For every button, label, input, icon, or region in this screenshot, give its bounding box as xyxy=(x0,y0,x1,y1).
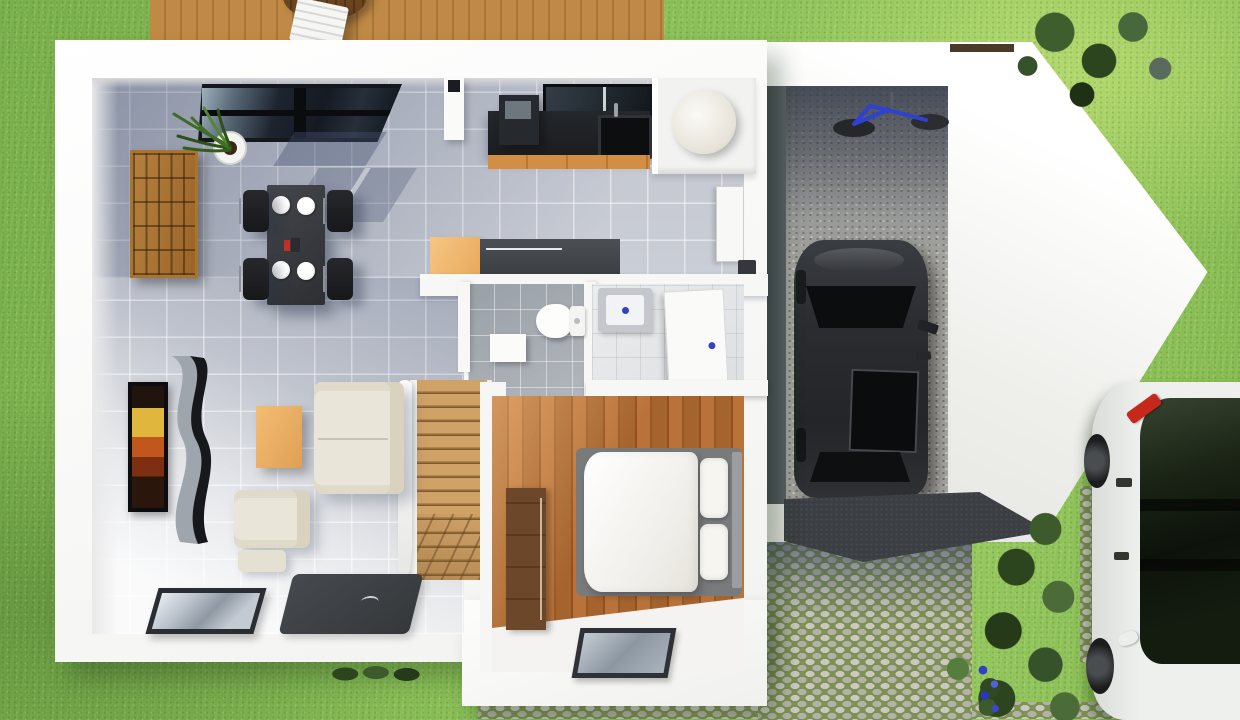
wall-planter-strip xyxy=(950,44,1014,52)
pillow-1 xyxy=(700,458,728,518)
inner-wall-face-left xyxy=(92,78,118,634)
floor-plan-render xyxy=(0,0,1240,720)
hedge-strip-bottom xyxy=(326,662,422,686)
dining-chair-3 xyxy=(327,190,353,232)
dining-chair-1 xyxy=(243,190,269,232)
bedroom-wall-top xyxy=(586,380,768,396)
armchair xyxy=(234,490,310,548)
dining-chair-2 xyxy=(243,258,269,300)
plate-2 xyxy=(297,197,315,215)
white-pillar xyxy=(444,78,464,140)
candle-dark xyxy=(291,238,300,252)
island-counter xyxy=(480,239,620,277)
black-car-sunroof xyxy=(849,369,920,453)
wardrobe xyxy=(506,488,546,630)
black-car xyxy=(794,240,928,498)
dark-rug xyxy=(279,574,424,634)
pillow-2 xyxy=(700,524,728,580)
water-heater xyxy=(672,90,736,154)
black-car-windshield xyxy=(806,286,916,328)
potted-plant xyxy=(168,106,258,178)
black-car-wheel-rear xyxy=(796,428,806,462)
curved-media-unit xyxy=(164,354,214,546)
blue-flowers xyxy=(968,656,1012,720)
hedge-bushes xyxy=(932,512,1094,720)
ottoman xyxy=(238,550,286,572)
plate-3 xyxy=(272,261,290,279)
coffee-machine xyxy=(499,95,539,145)
black-car-wheel-front xyxy=(796,270,806,304)
plate-4 xyxy=(297,262,315,280)
white-car xyxy=(1092,382,1240,720)
kitchen-cabinets xyxy=(488,155,650,169)
plate-1 xyxy=(272,196,290,214)
wall-tv-art xyxy=(128,382,168,512)
headboard xyxy=(732,452,742,588)
candle-red xyxy=(284,240,290,251)
black-car-rear-window xyxy=(810,452,910,482)
wc-sink xyxy=(490,334,526,362)
wall-mounted-bicycle xyxy=(830,92,954,142)
dining-chair-4 xyxy=(327,258,353,300)
white-car-door-handle xyxy=(1116,478,1132,487)
bathroom-door xyxy=(664,288,729,387)
kitchen-sink xyxy=(598,115,652,159)
bush-top-right xyxy=(1014,0,1184,118)
sofa xyxy=(314,382,404,494)
white-car-glass-roof xyxy=(1140,398,1240,664)
car-hood-highlight xyxy=(814,248,904,272)
toilet-bowl xyxy=(536,304,572,338)
white-car-mirror xyxy=(1116,629,1139,648)
coffee-table xyxy=(256,406,302,468)
white-car-wheel-front xyxy=(1084,434,1110,488)
entry-door xyxy=(716,186,744,262)
kitchen-faucet xyxy=(614,103,618,117)
bedroom xyxy=(492,396,744,672)
bedroom-floor-skylight xyxy=(572,628,677,678)
bed-duvet xyxy=(584,452,698,592)
white-car-door-handle-2 xyxy=(1114,552,1129,560)
glass-floor-panel xyxy=(145,588,266,634)
orange-sideboard xyxy=(430,237,480,277)
wc-wall-left xyxy=(458,282,470,372)
bathroom-sink xyxy=(598,288,652,332)
toilet-tank xyxy=(570,306,585,336)
